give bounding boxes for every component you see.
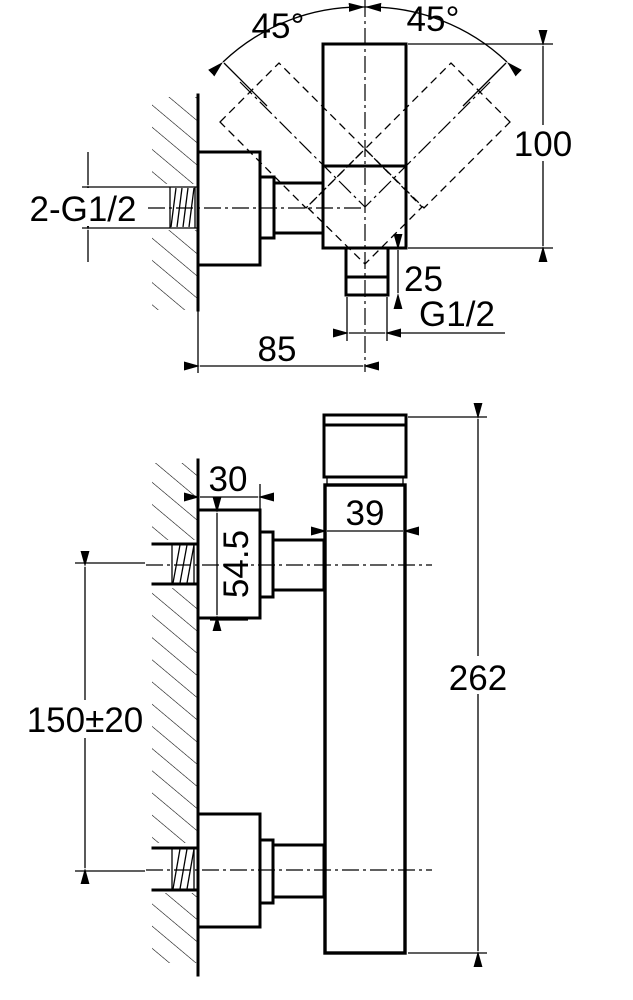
angle-left-label: 45° xyxy=(252,7,305,46)
wall-section-front-view xyxy=(150,460,198,975)
outlet-spigot-rim xyxy=(346,277,388,295)
inlet-spacing-label: 150±20 xyxy=(27,701,144,740)
top-view: 45° 45° 100 2-G1/2 25 xyxy=(22,0,576,373)
body-column xyxy=(325,485,405,953)
dim-25: 25 xyxy=(398,250,443,299)
dim-85: 85 xyxy=(200,330,363,369)
angle-right-label: 45° xyxy=(407,0,460,39)
wall-to-center-label: 85 xyxy=(258,330,297,369)
escutcheon-width-label: 30 xyxy=(209,460,248,499)
dim-150-20: 150±20 xyxy=(20,563,150,871)
lower-flange xyxy=(260,840,273,903)
dim-262: 262 xyxy=(408,417,514,953)
mixer-drawing-canvas: 45° 45° 100 2-G1/2 25 xyxy=(0,0,633,1000)
dim-100: 100 xyxy=(408,44,576,248)
dim-height-label: 100 xyxy=(514,125,572,164)
outlet-thread-label: G1/2 xyxy=(419,295,495,334)
wall-section-top-view xyxy=(150,95,198,373)
diagonal-centerline-right xyxy=(365,82,490,207)
dim-30: 30 xyxy=(200,460,260,509)
body-width-label: 39 xyxy=(346,494,385,533)
escutcheon-height-label: 54.5 xyxy=(217,530,256,598)
wall-thread-label: 2-G1/2 xyxy=(30,190,137,229)
lower-connector xyxy=(273,845,324,897)
dim-54-5: 54.5 xyxy=(210,513,256,620)
dim-g12: G1/2 xyxy=(347,295,505,341)
front-view: 30 39 54.5 150±20 262 xyxy=(20,415,514,975)
body-height-label: 262 xyxy=(449,659,507,698)
dim-39: 39 xyxy=(327,494,403,533)
dim-2-g12: 2-G1/2 xyxy=(22,152,144,262)
outlet-depth-label: 25 xyxy=(404,260,443,299)
technical-drawing-page: 45° 45° 100 2-G1/2 25 xyxy=(0,0,633,1000)
